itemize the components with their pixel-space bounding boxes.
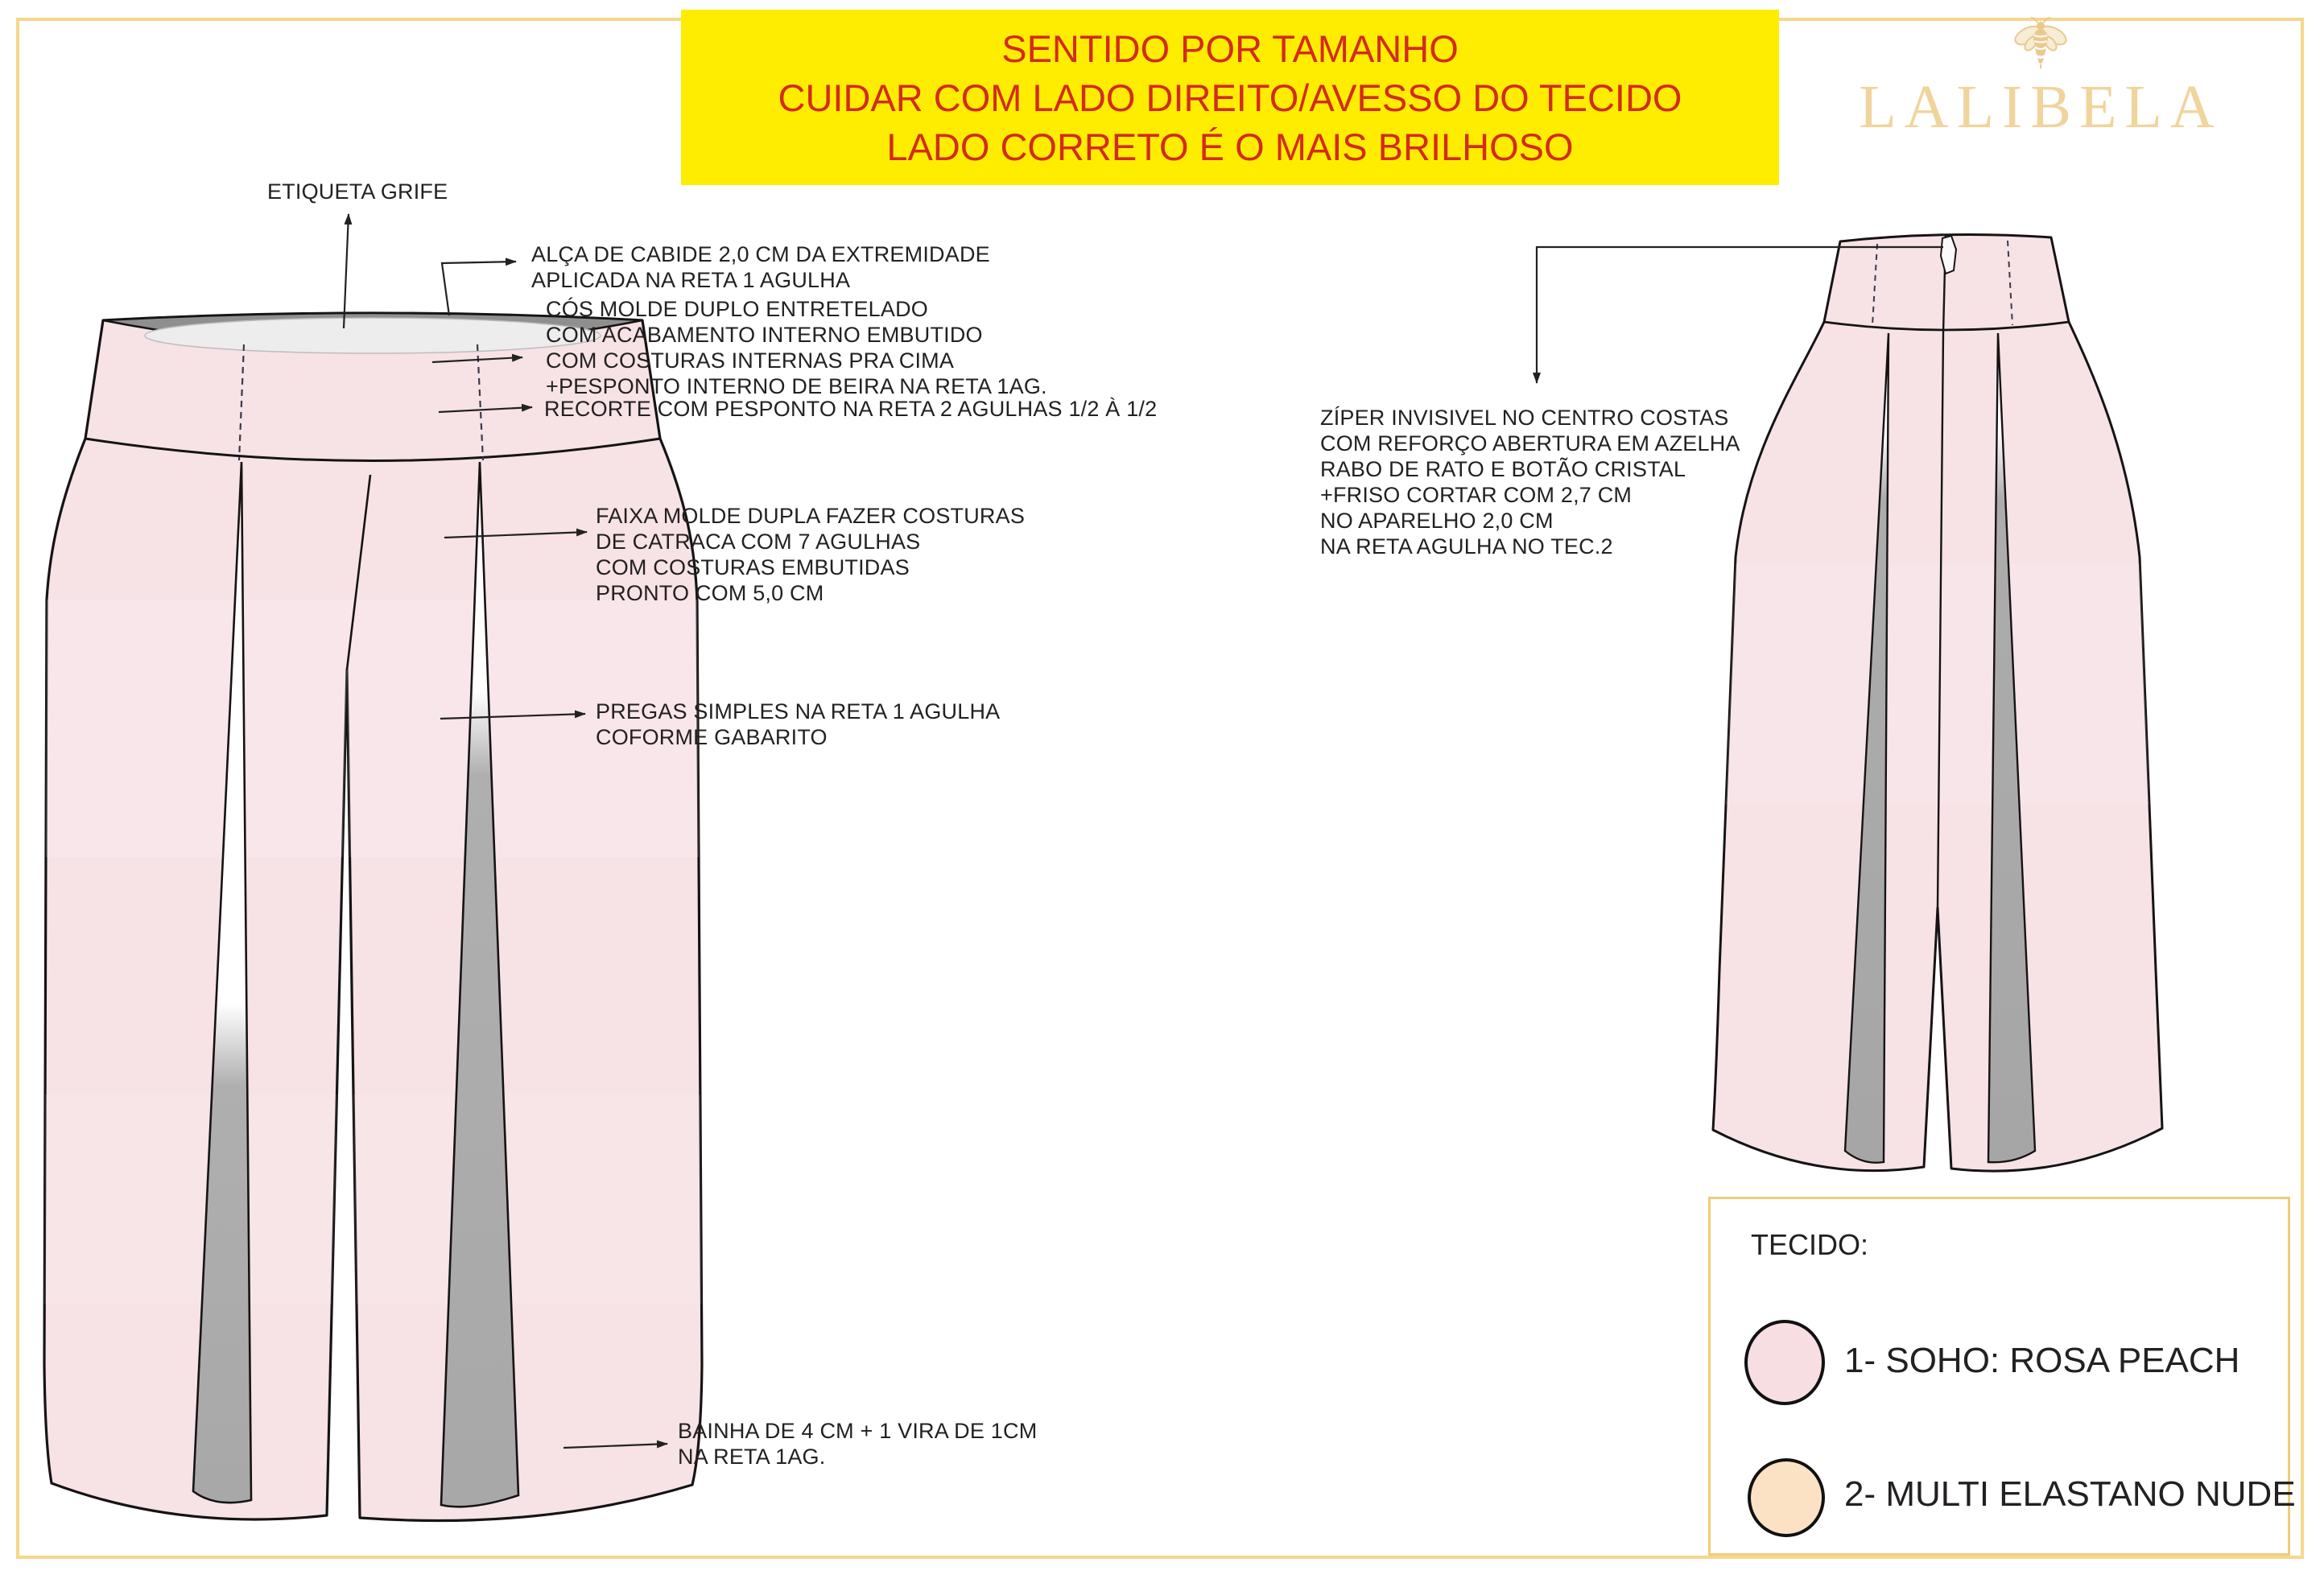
leader-alca: [442, 262, 516, 315]
callout-etiqueta-grife: ETIQUETA GRIFE: [267, 179, 448, 204]
callout-faixa-molde: FAIXA MOLDE DUPLA FAZER COSTURAS DE CATR…: [596, 503, 1025, 606]
brand-name: LALIBELA: [1835, 72, 2246, 142]
waistband-inner-ellipse: [145, 318, 601, 353]
brand-logo: LALIBELA: [1835, 16, 2246, 142]
fabric-label-1: 1- SOHO: ROSA PEACH: [1844, 1341, 2239, 1381]
callout-recorte-pesponto: RECORTE COM PESPONTO NA RETA 2 AGULHAS 1…: [544, 396, 1157, 422]
banner-line-3: LADO CORRETO É O MAIS BRILHOSO: [681, 122, 1779, 171]
bee-icon: [2006, 16, 2075, 69]
leader-etiqueta: [344, 214, 349, 328]
callout-ziper-invisivel: ZÍPER INVISIVEL NO CENTRO COSTAS COM REF…: [1320, 405, 1740, 559]
callout-pregas-simples: PREGAS SIMPLES NA RETA 1 AGULHA COFORME …: [596, 699, 1000, 750]
back-view-pants: [1707, 234, 2173, 1171]
techpack-page: SENTIDO POR TAMANHO CUIDAR COM LADO DIRE…: [0, 0, 2324, 1583]
callout-alca-cabide: ALÇA DE CABIDE 2,0 CM DA EXTREMIDADE APL…: [531, 241, 990, 293]
banner-line-2: CUIDAR COM LADO DIREITO/AVESSO DO TECIDO: [681, 73, 1779, 122]
callout-cos-molde: CÓS MOLDE DUPLO ENTRETELADO COM ACABAMEN…: [546, 296, 1047, 399]
fabric-swatch-1: [1744, 1320, 1825, 1405]
banner-line-1: SENTIDO POR TAMANHO: [681, 24, 1779, 73]
front-view-pants: [40, 313, 708, 1521]
legend-title: TECIDO:: [1751, 1228, 1868, 1262]
callout-bainha: BAINHA DE 4 CM + 1 VIRA DE 1CM NA RETA 1…: [678, 1418, 1037, 1470]
fabric-legend-box: TECIDO: 1- SOHO: ROSA PEACH 2- MULTI ELA…: [1708, 1197, 2290, 1556]
fabric-swatch-2: [1748, 1458, 1825, 1537]
warning-banner: SENTIDO POR TAMANHO CUIDAR COM LADO DIRE…: [681, 10, 1779, 185]
fabric-label-2: 2- MULTI ELASTANO NUDE: [1844, 1474, 2296, 1515]
